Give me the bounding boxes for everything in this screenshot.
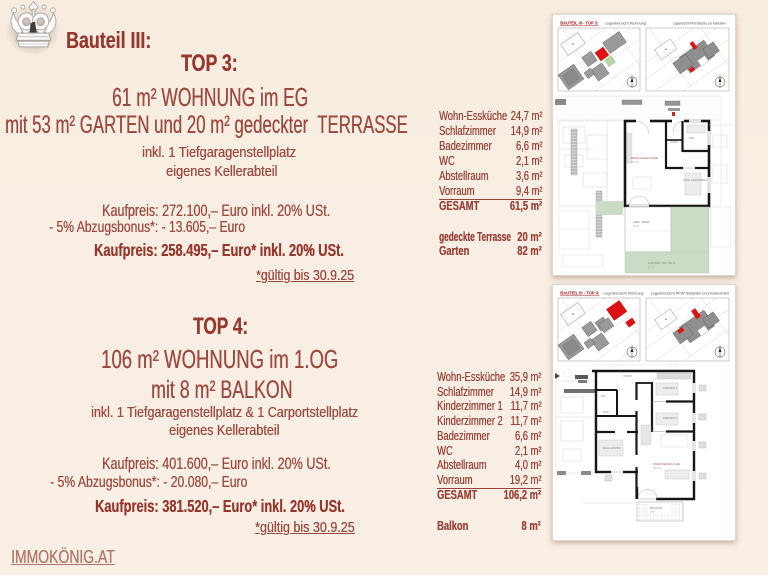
svg-text:Lageübersicht Wohnung: Lageübersicht Wohnung [605,22,647,26]
svg-text:VORR.: VORR. [670,140,678,144]
svg-text:SCHLAFZIMMER: SCHLAFZIMMER [683,178,708,182]
svg-text:WOHN-ESSKÜCHE: WOHN-ESSKÜCHE [631,156,658,160]
svg-text:BALKON: BALKON [650,506,662,510]
svg-text:BAUTEIL III - TOP 3:: BAUTEIL III - TOP 3: [560,21,598,26]
svg-text:SCHLAFZIM.: SCHLAFZIM. [603,446,621,450]
svg-text:BAD: BAD [603,410,609,414]
svg-text:GED. TERR.: GED. TERR. [633,220,650,224]
svg-text:20 m²: 20 m² [633,225,639,228]
svg-text:35,9 m²: 35,9 m² [653,467,661,470]
svg-text:GARTEN TOP NR 3: GARTEN TOP NR 3 [648,261,675,265]
svg-text:Lageübersicht PKW-Stellplatz u: Lageübersicht PKW-Stellplatz und Kellera… [673,22,726,26]
svg-text:24,7 m²: 24,7 m² [631,161,639,164]
svg-text:ZIMMER 1: ZIMMER 1 [663,386,678,390]
svg-text:82 m²: 82 m² [648,266,654,269]
svg-text:Lageübersicht PKW-Stellplatz u: Lageübersicht PKW-Stellplatz und Kellera… [651,292,729,296]
svg-text:BAD: BAD [689,136,694,140]
svg-text:VORR.: VORR. [623,374,633,378]
svg-text:ZIMMER 2: ZIMMER 2 [663,416,678,420]
svg-text:BAUTEIL III - TOP 4:: BAUTEIL III - TOP 4: [560,291,600,296]
svg-text:WC: WC [601,394,606,398]
svg-text:8 m²: 8 m² [650,511,655,514]
svg-text:Lageübersicht Wohnung: Lageübersicht Wohnung [604,292,644,296]
svg-text:WOHN-ESSKÜCHE: WOHN-ESSKÜCHE [653,462,680,466]
